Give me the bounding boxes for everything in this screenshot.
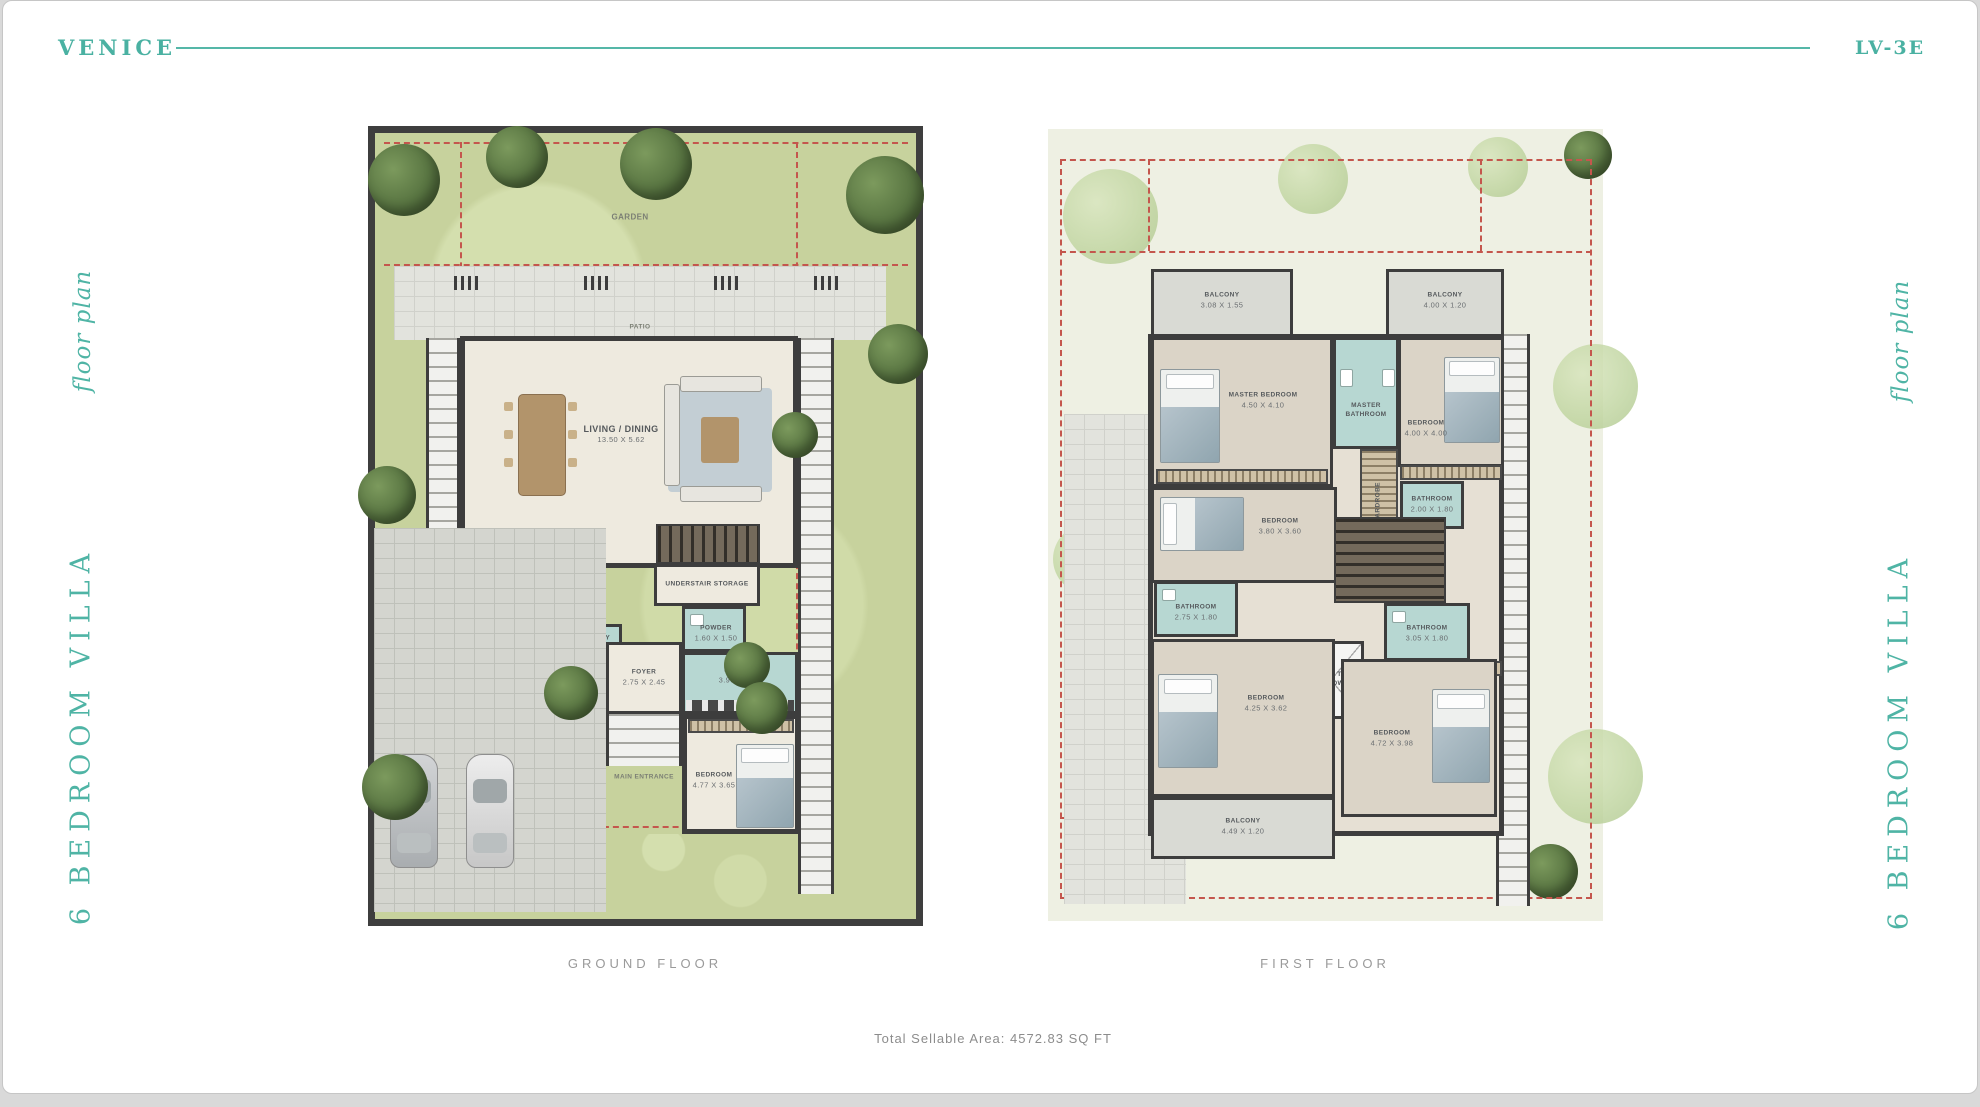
master-bathroom — [1333, 337, 1399, 449]
total-area-text: Total Sellable Area: 4572.83 SQ FT — [874, 1031, 1112, 1046]
left-floor-plan-label: floor plan — [70, 270, 96, 392]
setback-line — [1480, 159, 1482, 251]
first-floor-caption: FIRST FLOOR — [1260, 956, 1390, 971]
pergola-column-icon — [584, 276, 608, 290]
bed — [1444, 357, 1500, 443]
ground-floor-caption: GROUND FLOOR — [568, 956, 722, 971]
rear-garden-strip — [606, 834, 798, 912]
first-staircase — [1334, 517, 1446, 603]
bed — [1160, 369, 1220, 463]
balcony-tl-label: BALCONY 3.08 X 1.55 — [1201, 292, 1244, 311]
tree-icon — [772, 412, 818, 458]
wardrobe-band — [1156, 469, 1328, 484]
sofa-icon — [680, 486, 762, 502]
bathroom-3-label: BATHROOM 2.75 X 1.80 — [1175, 604, 1218, 623]
first-floor-plan: BALCONY 3.08 X 1.55 BALCONY 4.00 X 1.20 … — [1048, 129, 1603, 921]
car-icon — [466, 754, 514, 868]
bed — [1160, 497, 1244, 551]
dining-table — [518, 394, 566, 496]
setback-line — [1148, 159, 1150, 251]
bed — [736, 744, 794, 828]
garden-label: GARDEN — [611, 213, 648, 224]
bathroom-2-label: BATHROOM 2.00 X 1.80 — [1411, 496, 1454, 515]
bed — [1158, 674, 1218, 768]
living-dining-label: LIVING / DINING 13.50 X 5.62 — [583, 423, 658, 445]
ground-floor-plan: GARDEN PATIO LIVING / DINING 13.50 X 5.6… — [368, 126, 923, 926]
unit-code: LV-3E — [1855, 37, 1925, 59]
left-villa-type-label: 6 BEDROOM VILLA — [66, 547, 97, 925]
sink-icon — [1162, 589, 1176, 601]
patio-label: PATIO — [630, 324, 651, 333]
bedroom-2-label: BEDROOM 4.00 X 4.00 — [1405, 420, 1448, 439]
bed — [1432, 689, 1490, 783]
balcony-bottom-label: BALCONY 4.49 X 1.20 — [1222, 818, 1265, 837]
main-entrance-label: MAIN ENTRANCE — [614, 774, 674, 783]
master-bathroom-label: MASTER BATHROOM — [1338, 402, 1394, 420]
tree-icon — [736, 682, 788, 734]
page-card: VENICE LV-3E floor plan 6 BEDROOM VILLA … — [2, 0, 1978, 1094]
powder-label: POWDER 1.60 X 1.50 — [695, 625, 738, 644]
sink-icon — [1340, 369, 1353, 387]
setback-line — [1060, 251, 1592, 253]
tree-icon — [486, 126, 548, 188]
understair-storage-label: UNDERSTAIR STORAGE — [662, 581, 752, 590]
balcony-tr-label: BALCONY 4.00 X 1.20 — [1424, 292, 1467, 311]
bathroom-4-label: BATHROOM 3.05 X 1.80 — [1406, 625, 1449, 644]
pergola-column-icon — [714, 276, 738, 290]
brand-title: VENICE — [58, 35, 176, 60]
right-villa-type-label: 6 BEDROOM VILLA — [1884, 552, 1915, 930]
brochure-page: VENICE LV-3E floor plan 6 BEDROOM VILLA … — [0, 0, 1980, 1107]
bedroom-5-label: BEDROOM 4.72 X 3.98 — [1371, 730, 1414, 749]
ground-staircase — [656, 524, 760, 564]
tree-icon — [620, 128, 692, 200]
tree-icon — [544, 666, 598, 720]
tree-icon — [846, 156, 924, 234]
pergola-column-icon — [454, 276, 478, 290]
entrance-steps — [606, 714, 682, 766]
sofa-icon — [664, 384, 680, 486]
sink-icon — [1382, 369, 1395, 387]
ground-bedroom-label: BEDROOM 4.77 X 3.65 — [693, 772, 736, 791]
master-bedroom-label: MASTER BEDROOM 4.50 X 4.10 — [1229, 392, 1298, 411]
tree-icon — [368, 144, 440, 216]
pergola-column-icon — [814, 276, 838, 290]
living-rug — [668, 388, 772, 492]
tree-icon — [868, 324, 928, 384]
header-rule — [176, 47, 1810, 49]
chair-icon — [568, 402, 577, 411]
sofa-icon — [680, 376, 762, 392]
tree-icon — [358, 466, 416, 524]
tree-icon — [362, 754, 428, 820]
foyer-label: FOYER 2.75 X 2.45 — [623, 669, 666, 688]
sink-icon — [1392, 611, 1406, 623]
wardrobe-band — [1400, 465, 1502, 480]
bedroom-4-label: BEDROOM 4.25 X 3.62 — [1245, 695, 1288, 714]
right-floor-plan-label: floor plan — [1888, 280, 1914, 402]
chair-icon — [504, 402, 513, 411]
bedroom-3-label: BEDROOM 3.80 X 3.60 — [1259, 518, 1302, 537]
